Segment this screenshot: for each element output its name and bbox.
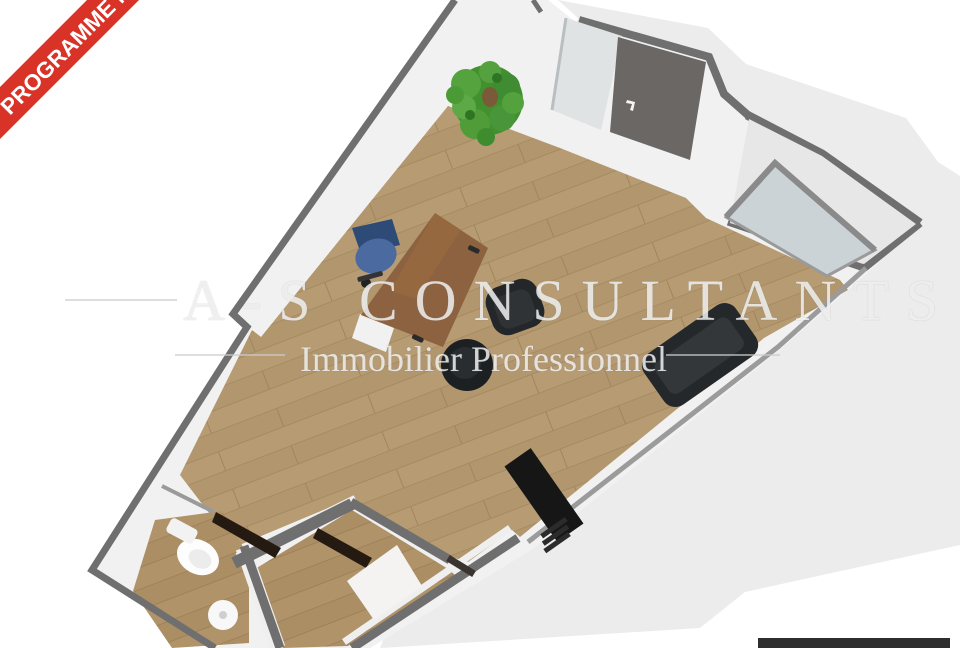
svg-text:PROGRAMME NEUF: PROGRAMME NEUF [0, 0, 168, 120]
